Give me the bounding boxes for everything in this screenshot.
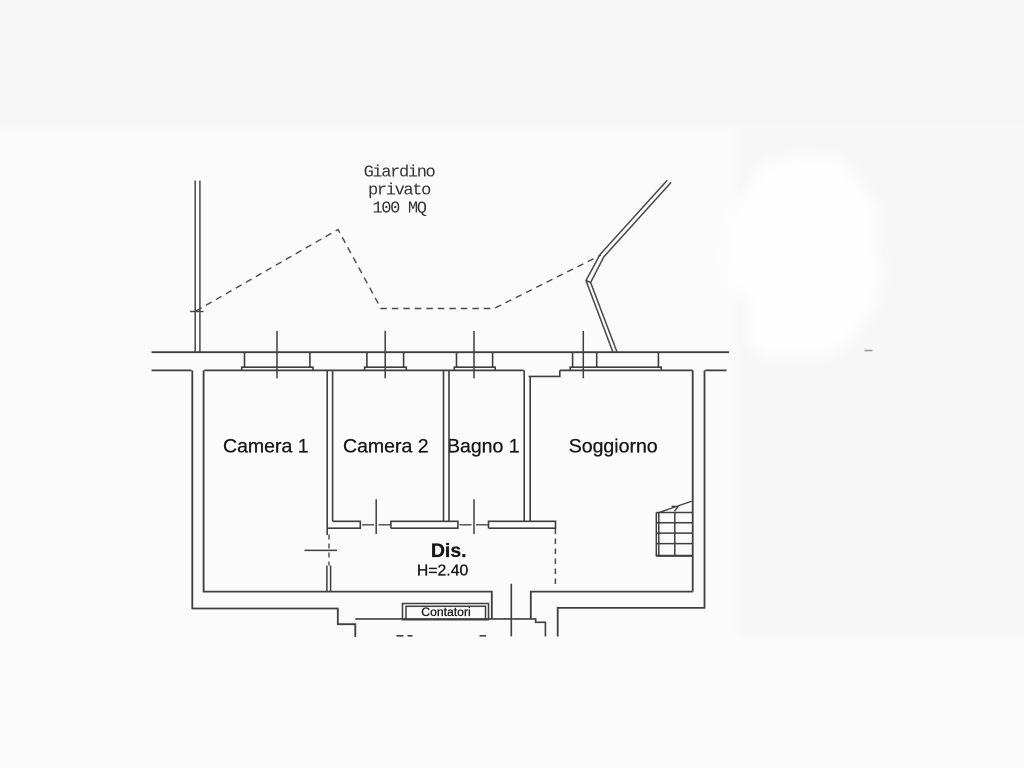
- svg-text:Contatori: Contatori: [421, 605, 470, 619]
- svg-text:Camera 1: Camera 1: [223, 436, 309, 458]
- svg-text:Dis.: Dis.: [431, 540, 467, 562]
- svg-text:Giardino: Giardino: [364, 164, 436, 183]
- svg-text:Soggiorno: Soggiorno: [569, 436, 658, 458]
- svg-text:H=2.40: H=2.40: [417, 563, 469, 580]
- svg-text:privato: privato: [368, 182, 431, 201]
- svg-text:100 MQ: 100 MQ: [372, 200, 426, 219]
- svg-text:Bagno 1: Bagno 1: [447, 436, 520, 458]
- svg-text:Camera 2: Camera 2: [343, 436, 429, 458]
